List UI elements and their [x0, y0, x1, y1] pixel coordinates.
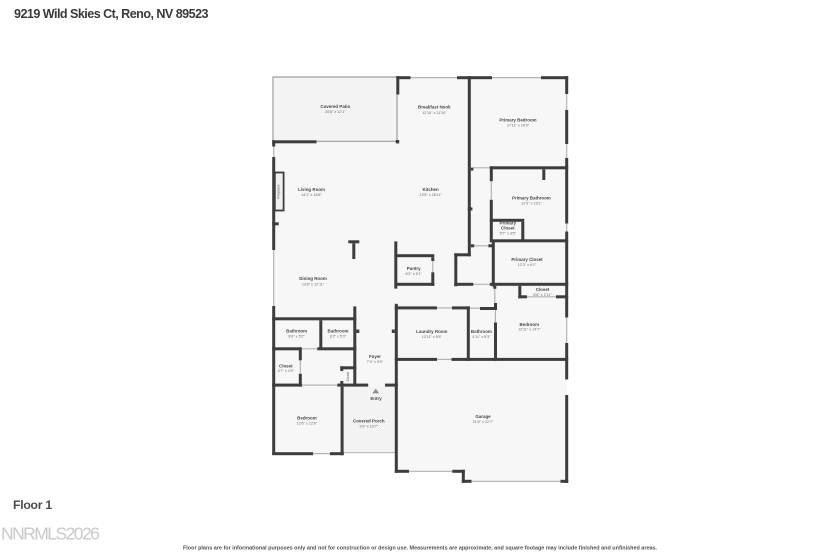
svg-text:20'6" x 12'1": 20'6" x 12'1" [325, 110, 346, 114]
svg-text:9'9" x 10'7": 9'9" x 10'7" [360, 425, 379, 429]
svg-text:Closet: Closet [536, 287, 550, 292]
svg-text:Laundry Room: Laundry Room [416, 329, 447, 334]
svg-text:Fireplace: Fireplace [276, 184, 280, 198]
svg-text:Closet: Closet [346, 372, 350, 382]
svg-text:6'2" x 5'1": 6'2" x 5'1" [405, 272, 422, 276]
svg-text:12'3" x 13'1": 12'3" x 13'1" [521, 202, 542, 206]
svg-text:13'5" x 26'11": 13'5" x 26'11" [419, 193, 442, 197]
svg-text:8'8" x 5'2": 8'8" x 5'2" [288, 334, 305, 338]
svg-text:Entry: Entry [370, 396, 382, 401]
svg-text:12'10" x 11'10": 12'10" x 11'10" [422, 111, 447, 115]
svg-text:Floor plans are for informatio: Floor plans are for informational purpos… [183, 546, 658, 552]
svg-text:Covered Patio: Covered Patio [320, 104, 350, 109]
svg-text:Pantry: Pantry [407, 266, 421, 271]
svg-text:Garage: Garage [475, 414, 491, 419]
svg-text:4'11" x 8'3": 4'11" x 8'3" [472, 335, 491, 339]
svg-text:17'11" x 16'9": 17'11" x 16'9" [507, 124, 530, 128]
svg-text:NNRMLS2026: NNRMLS2026 [1, 524, 99, 544]
svg-text:Dining Room: Dining Room [299, 276, 327, 281]
svg-text:Bedroom: Bedroom [520, 322, 540, 327]
svg-text:Closet: Closet [501, 226, 515, 231]
svg-text:14'1" x 18'6": 14'1" x 18'6" [301, 193, 322, 197]
svg-text:Bathroom: Bathroom [286, 329, 307, 334]
svg-text:12'11" x 8'5": 12'11" x 8'5" [422, 335, 443, 339]
svg-text:4'7" x 4'9": 4'7" x 4'9" [278, 369, 295, 373]
svg-text:Bathroom: Bathroom [328, 329, 349, 334]
svg-text:Closet: Closet [279, 363, 293, 368]
svg-text:Primary Bedroom: Primary Bedroom [499, 118, 536, 123]
svg-text:12'11" x 14'7": 12'11" x 14'7" [518, 328, 541, 332]
svg-text:9219 Wild Skies Ct, Reno, NV 8: 9219 Wild Skies Ct, Reno, NV 89523 [14, 7, 209, 21]
svg-text:12'3" x 6'1": 12'3" x 6'1" [518, 263, 537, 267]
svg-text:Living Room: Living Room [298, 187, 325, 192]
svg-text:7'4" x 9'9": 7'4" x 9'9" [367, 360, 384, 364]
svg-text:Covered Porch: Covered Porch [353, 418, 385, 423]
svg-text:Floor 1: Floor 1 [13, 498, 52, 512]
svg-text:8'6" x 1'11": 8'6" x 1'11" [533, 293, 552, 297]
svg-text:12'6" x 12'6": 12'6" x 12'6" [297, 422, 318, 426]
svg-text:21'6" x 22'7": 21'6" x 22'7" [473, 420, 494, 424]
svg-text:8'2" x 5'3": 8'2" x 5'3" [330, 334, 347, 338]
svg-text:13'8" x 12'11": 13'8" x 12'11" [302, 282, 325, 286]
svg-text:Kitchen: Kitchen [422, 187, 439, 192]
svg-text:5'7" x 3'5": 5'7" x 3'5" [500, 232, 517, 236]
svg-text:Primary Closet: Primary Closet [511, 257, 543, 262]
svg-text:Breakfast Nook: Breakfast Nook [418, 105, 451, 110]
svg-text:Bathroom: Bathroom [471, 329, 492, 334]
svg-text:Primary Bathroom: Primary Bathroom [512, 196, 551, 201]
svg-text:Foyer: Foyer [369, 354, 381, 359]
svg-text:Bedroom: Bedroom [297, 416, 317, 421]
